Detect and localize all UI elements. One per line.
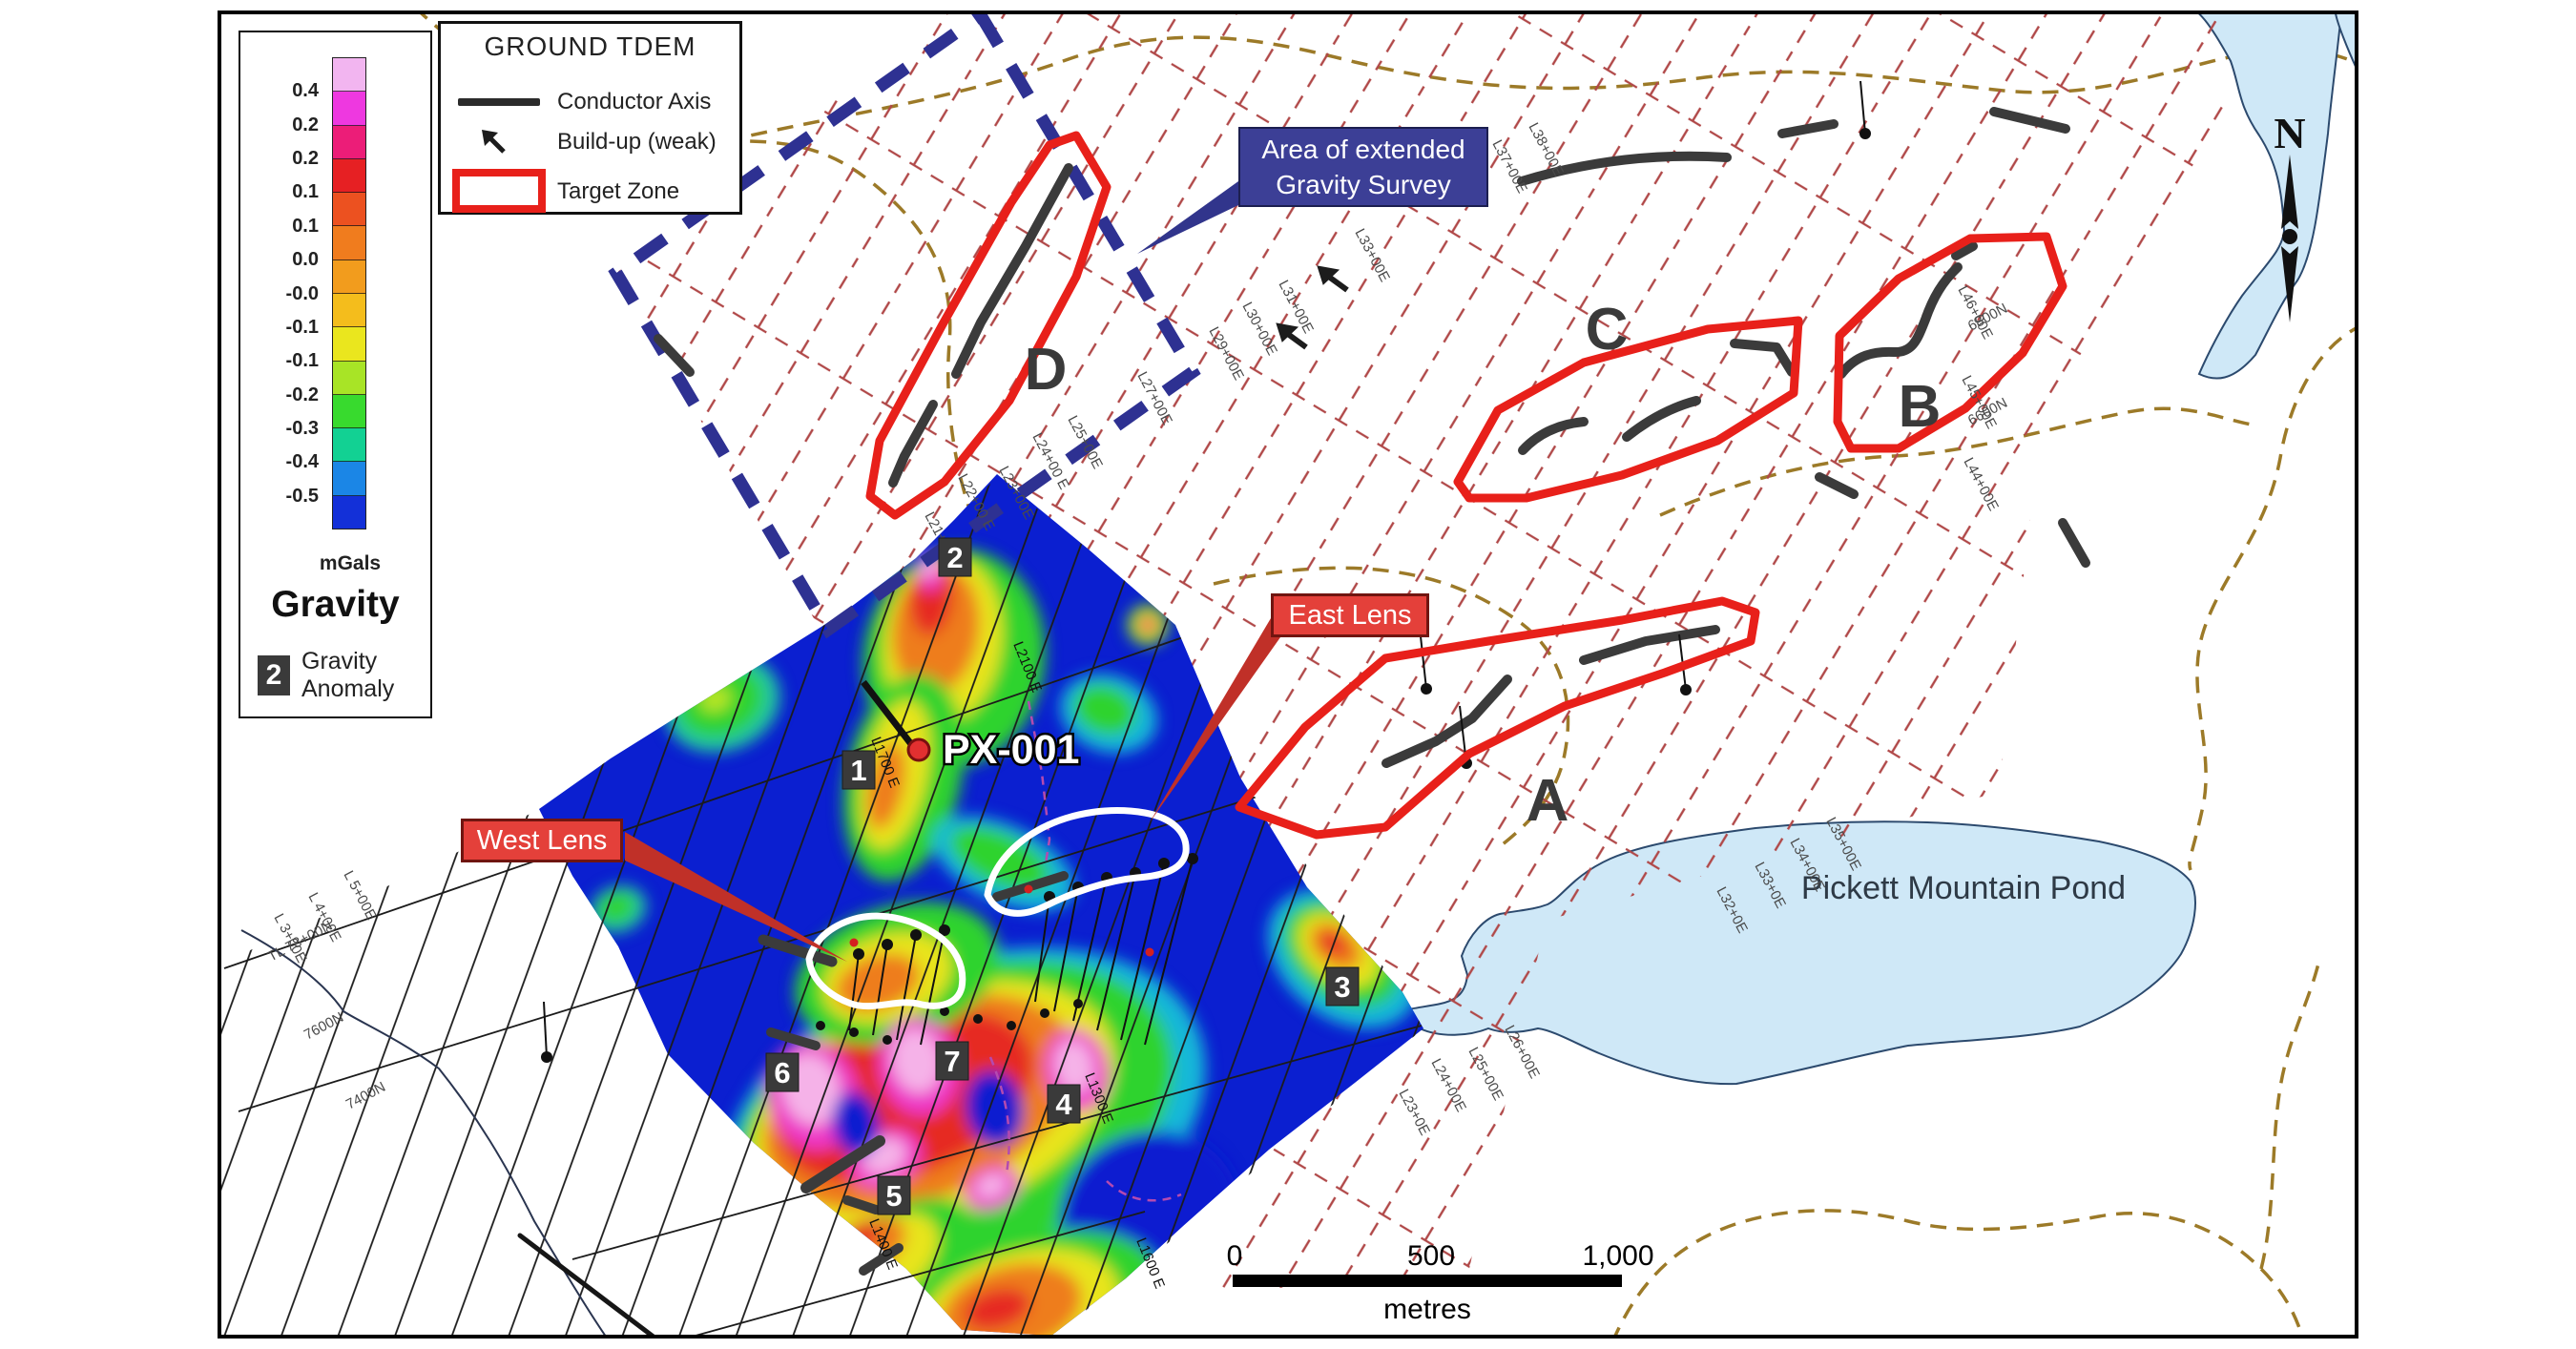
colorbar-segment [333, 362, 365, 395]
anomaly-marker-number-1: 1 [850, 754, 866, 787]
target-zone-letter-a: A [1527, 768, 1569, 834]
anomaly-marker-number-5: 5 [885, 1179, 902, 1213]
conductor-axis-label: Conductor Axis [557, 89, 711, 115]
area-callout-line2: Gravity Survey [1261, 167, 1465, 202]
scale-units: metres [1383, 1294, 1471, 1325]
colorbar-value: 0.0 [248, 249, 319, 271]
pond-name-label: Pickett Mountain Pond [1801, 870, 2126, 906]
gravity-colorbar-labels: 0.40.20.20.10.10.0-0.0-0.1-0.1-0.2-0.3-0… [240, 32, 324, 567]
build-up-arrow-icon [479, 127, 508, 160]
colorbar-segment [333, 395, 365, 428]
gravity-units-label: mGals [279, 552, 422, 575]
colorbar-value: -0.2 [248, 384, 319, 406]
gravity-anomaly-legend: 2 Gravity Anomaly [258, 648, 394, 703]
anomaly-marker-number-6: 6 [774, 1056, 790, 1090]
colorbar-segment [333, 496, 365, 529]
scale-tick-1000: 1,000 [1582, 1240, 1653, 1272]
extended-gravity-survey-callout: Area of extended Gravity Survey [1238, 127, 1488, 207]
gravity-anomaly-label-line2: Anomaly [301, 675, 394, 703]
scale-tick-0: 0 [1227, 1240, 1243, 1272]
colorbar-segment [333, 126, 365, 159]
px001-collar [908, 739, 929, 760]
conductor-axis-icon [458, 98, 540, 106]
colorbar-segment [333, 58, 365, 92]
colorbar-value: -0.3 [248, 418, 319, 440]
colorbar-value: -0.1 [248, 317, 319, 339]
colorbar-value: -0.0 [248, 283, 319, 305]
anomaly-marker-number-4: 4 [1055, 1088, 1072, 1121]
colorbar-segment [333, 159, 365, 193]
west-lens-callout: West Lens [461, 819, 623, 862]
gravity-colorbar [332, 57, 366, 529]
colorbar-segment [333, 226, 365, 259]
target-zone-letter-b: B [1899, 374, 1942, 440]
gravity-anomaly-label: Gravity Anomaly [301, 648, 394, 703]
colorbar-value: 0.1 [248, 216, 319, 238]
area-callout-line1: Area of extended [1261, 132, 1465, 167]
target-zone-letter-d: D [1025, 337, 1068, 403]
colorbar-value: -0.1 [248, 350, 319, 372]
colorbar-value: -0.5 [248, 486, 319, 508]
legend-row-target-zone: Target Zone [450, 175, 737, 209]
north-label: N [2274, 109, 2305, 157]
gravity-title: Gravity [240, 584, 430, 626]
anomaly-marker-number-3: 3 [1334, 970, 1350, 1004]
colorbar-segment [333, 294, 365, 327]
anomaly-marker-number-7: 7 [944, 1045, 960, 1078]
colorbar-value: 0.2 [248, 148, 319, 170]
target-zone-label: Target Zone [557, 178, 679, 205]
colorbar-segment [333, 327, 365, 361]
gravity-anomaly-label-line1: Gravity [301, 648, 394, 675]
colorbar-value: -0.4 [248, 451, 319, 473]
gravity-anomaly-symbol: 2 [258, 655, 290, 695]
build-up-label: Build-up (weak) [557, 129, 717, 156]
tdem-legend-title: GROUND TDEM [441, 31, 739, 62]
colorbar-segment [333, 193, 365, 226]
gravity-legend-panel: 0.40.20.20.10.10.0-0.0-0.1-0.1-0.2-0.3-0… [239, 31, 432, 718]
anomaly-marker-number-2: 2 [946, 541, 963, 574]
legend-row-build-up: Build-up (weak) [450, 125, 737, 159]
target-zone-letter-c: C [1586, 297, 1629, 363]
colorbar-segment [333, 260, 365, 294]
px001-label: PX-001 [943, 727, 1079, 773]
colorbar-segment [333, 428, 365, 462]
colorbar-value: 0.1 [248, 181, 319, 203]
survey-map-figure: PX-001 Pickett Mountain Pond N 0 500 1,0… [0, 0, 2576, 1349]
legend-row-conductor-axis: Conductor Axis [450, 85, 737, 119]
target-zone-icon [452, 169, 546, 213]
colorbar-segment [333, 92, 365, 125]
colorbar-value: 0.4 [248, 80, 319, 102]
colorbar-value: 0.2 [248, 114, 319, 136]
scale-tick-500: 500 [1407, 1240, 1455, 1272]
colorbar-segment [333, 462, 365, 495]
east-lens-callout: East Lens [1271, 593, 1429, 637]
tdem-legend-panel: GROUND TDEM Conductor Axis Build-up (wea… [438, 21, 742, 215]
